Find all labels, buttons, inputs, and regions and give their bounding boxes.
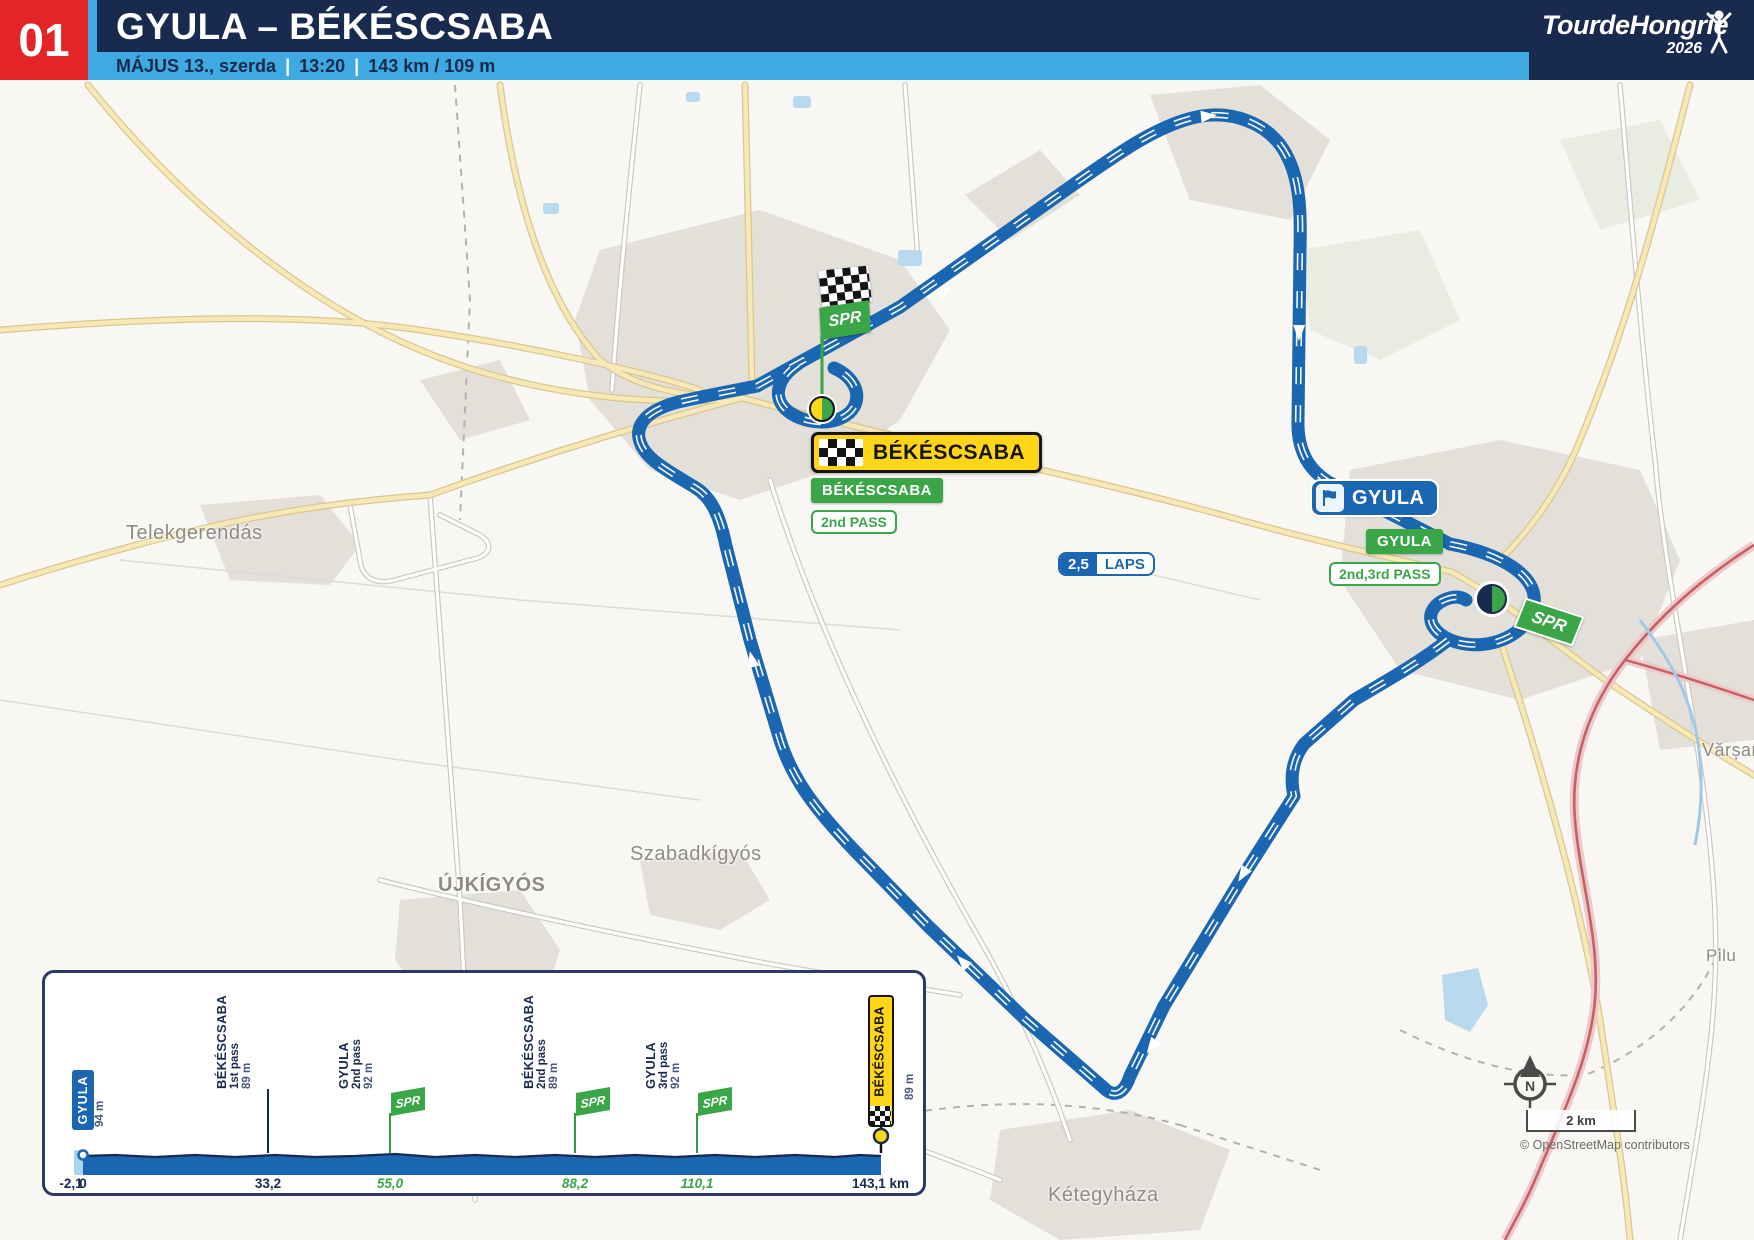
elevation-profile-chart [45,973,923,1193]
finish-sign: BÉKÉSCSABA [811,432,1042,473]
laps-word: LAPS [1097,554,1153,574]
finish-sign-checker-icon [819,439,863,466]
stage-date: MÁJUS 13., szerda [116,56,276,77]
profile-start-elevation: 94 m [94,1081,108,1127]
profile-start-name: GYULA [72,1070,94,1130]
finish-sign-label: BÉKÉSCSABA [873,441,1025,465]
start-dot [79,1151,88,1160]
waypoint-name: BÉKÉSCSABA [215,959,229,1089]
town-label-telekgerendas: Telekgerendás [126,522,263,545]
profile-waypoint-4: GYULA 3rd pass 92 m [644,959,684,1089]
stage-info-bar: MÁJUS 13., szerda | 13:20 | 143 km / 109… [97,52,1529,80]
axis-km-3: 88,2 [545,1176,605,1191]
axis-km-2: 55,0 [360,1176,420,1191]
stage-start-time: 13:20 [299,56,345,77]
profile-finish-label: BÉKÉSCSABA [868,995,894,1127]
axis-finish-km: 143,1 km [823,1176,909,1191]
header-accent-strip [88,0,97,80]
waypoint-elevation: 92 m [363,959,375,1089]
cyclist-icon [1704,8,1734,54]
finish-line-marker [809,396,835,422]
logo-wordmark: TourdeHongrie [1542,12,1728,39]
profile-finish-elevation: 89 m [904,1060,918,1100]
laps-badge: 2,5 LAPS [1058,552,1155,576]
profile-waypoint-3: BÉKÉSCSABA 2nd pass 89 m [522,959,562,1089]
start-pass-note: 2nd,3rd PASS [1329,562,1441,586]
start-sign-label: GYULA [1352,487,1425,510]
laps-value: 2,5 [1060,554,1097,574]
map-attribution: © OpenStreetMap contributors [1520,1138,1690,1152]
tour-de-hongrie-logo: TourdeHongrie 2026 [1542,12,1728,57]
waypoint-pass: 1st pass [229,959,241,1089]
separator: | [354,56,359,77]
profile-waypoint-1: BÉKÉSCSABA 1st pass 89 m [215,959,255,1089]
start-sign: GYULA [1312,481,1437,515]
profile-finish-name: BÉKÉSCSABA [870,997,891,1107]
compass-north-letter: N [1525,1078,1535,1094]
separator: | [285,56,290,77]
waypoint-name: BÉKÉSCSABA [522,959,536,1089]
logo-year: 2026 [1542,41,1702,57]
stage-distance: 143 km / 109 m [368,56,495,77]
town-label-ketegyhaza: Kétegyháza [1048,1184,1159,1207]
finish-dot [874,1129,888,1143]
waypoint-name: GYULA [337,959,351,1089]
axis-km-1: 33,2 [238,1176,298,1191]
map-scale-bar: 2 km [1526,1110,1636,1132]
axis-km-4: 110,1 [667,1176,727,1191]
waypoint-elevation: 89 m [548,959,560,1089]
waypoint-elevation: 89 m [241,959,253,1089]
waypoint-name: GYULA [644,959,658,1089]
profile-finish-checker-icon [870,1106,891,1125]
town-label-varsand: Vărșand [1702,740,1754,761]
waypoint-pass: 2nd pass [351,959,363,1089]
town-label-pilu: Pilu [1706,946,1736,966]
waypoint-elevation: 92 m [670,959,682,1089]
stage-title: GYULA – BÉKÉSCSABA [116,1,553,53]
town-label-szabadkigyos: Szabadkígyós [630,843,762,866]
waypoint-pass: 3rd pass [658,959,670,1089]
town-label-ujkigyos: ÚJKÍGYÓS [438,874,545,897]
axis-zero-km: 0 [53,1176,113,1191]
finish-pass-sign: BÉKÉSCSABA [811,478,943,503]
profile-start-label: GYULA [72,1070,94,1130]
stage-map-poster: N Telekgerendás Szabadkígyós ÚJKÍGYÓS Ké… [0,0,1754,1240]
mini-flag-icon [1320,488,1340,508]
start-pass-sign: GYULA [1366,529,1443,554]
waypoint-pass: 2nd pass [536,959,548,1089]
start-line-marker [1477,584,1507,614]
tour-logo-icon [1316,484,1344,512]
profile-waypoint-2: GYULA 2nd pass 92 m [337,959,377,1089]
elevation-profile-panel: GYULA 94 m BÉKÉSCSABA 1st pass 89 m GYUL… [42,970,926,1196]
stage-number-badge: 01 [0,0,88,80]
finish-pass-note: 2nd PASS [811,510,897,534]
header-banner: 01 GYULA – BÉKÉSCSABA MÁJUS 13., szerda … [0,0,1754,80]
